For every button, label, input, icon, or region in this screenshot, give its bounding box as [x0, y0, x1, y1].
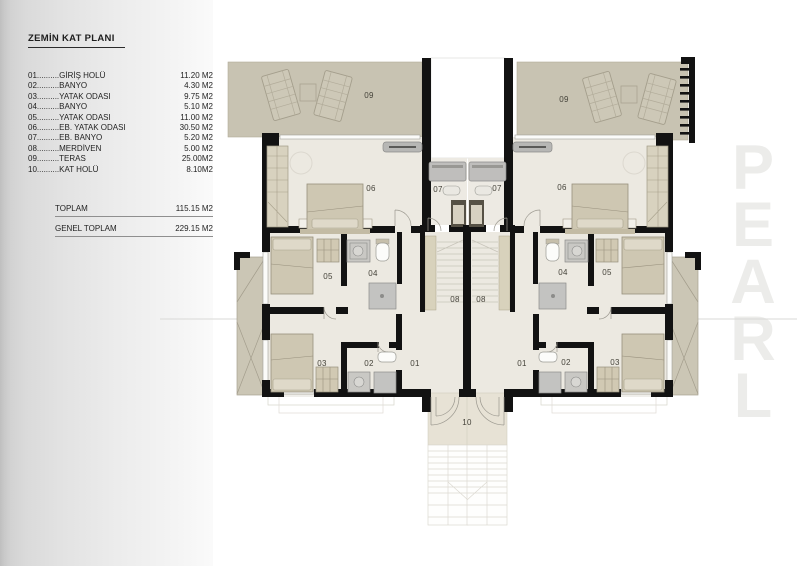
room-label-bath4-left: 04: [368, 269, 378, 278]
exterior-stairs: [428, 445, 468, 525]
room-label-bed5-left: 05: [323, 272, 333, 281]
room-label-bath7-right: 07: [492, 184, 502, 193]
room-label-bath2-left: 02: [364, 359, 374, 368]
terrace-right: [517, 62, 688, 140]
room-label-master-left: 06: [366, 184, 376, 193]
room-label-stairs-left: 08: [450, 295, 460, 304]
room-label-bed3-left: 03: [317, 359, 327, 368]
room-label-hall1-left: 01: [410, 359, 420, 368]
void-lightwell: [431, 58, 505, 158]
room-label-hall10: 10: [462, 418, 472, 427]
room-label-bath7-left: 07: [433, 185, 443, 194]
room-label-bed5-right: 05: [602, 268, 612, 277]
room-label-terrace-left: 09: [364, 91, 374, 100]
floor-plan-drawing: 09 09 06 06 07 07 05 04 04 05 08 08 03 0…: [0, 0, 800, 566]
room-label-terrace-right: 09: [559, 95, 569, 104]
room-label-master-right: 06: [557, 183, 567, 192]
room-label-bath2-right: 02: [561, 358, 571, 367]
terrace-left: [228, 62, 422, 137]
room-label-stairs-right: 08: [476, 295, 486, 304]
room-label-hall1-right: 01: [517, 359, 527, 368]
side-balcony: [234, 252, 265, 395]
room-label-bed3-right: 03: [610, 358, 620, 367]
room-label-bath4-right: 04: [558, 268, 568, 277]
floor-plan-page: { "title": "ZEMİN KAT PLANI", "watermark…: [0, 0, 800, 566]
